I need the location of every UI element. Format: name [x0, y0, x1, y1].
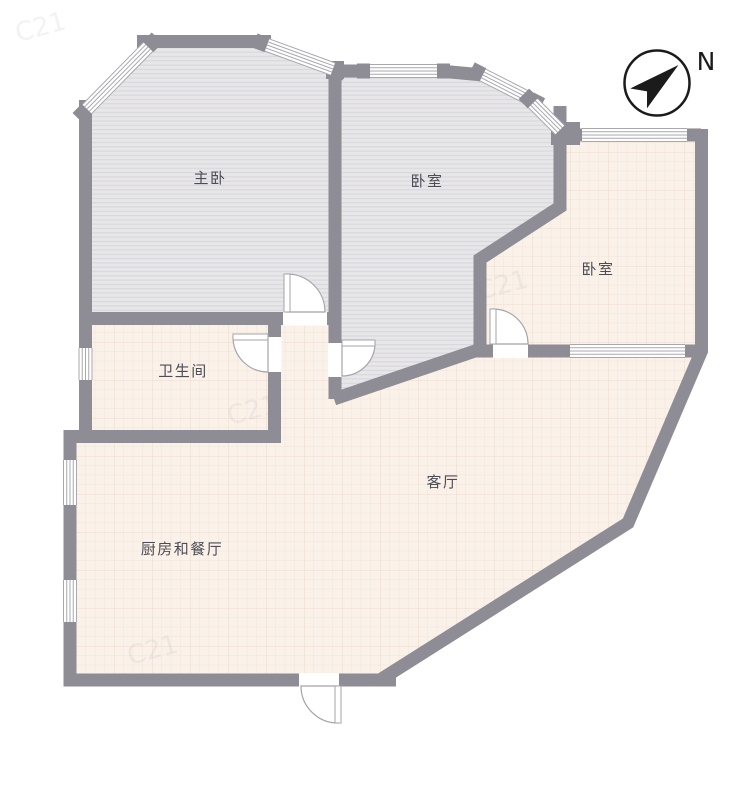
window-kitchen-left-2: [64, 580, 77, 622]
entrance-door-swing: [301, 686, 338, 723]
watermark-text: C21: [12, 7, 69, 49]
bedroom-north-door-leaf: [342, 340, 375, 346]
floor-plan-canvas: 主卧 卧室 卧室 卫生间 客厅 厨房和餐厅 N C21 C21 C21 C21: [0, 0, 750, 785]
window-bathroom-left: [79, 348, 92, 380]
label-bathroom: 卫生间: [158, 362, 208, 380]
bedroom-east-door-gap: [493, 344, 528, 358]
window-bedroom-east-top: [582, 129, 687, 142]
bathroom-door-gap: [268, 337, 282, 372]
compass-north-label: N: [697, 47, 716, 76]
bedroom-north-door-gap: [328, 343, 342, 377]
entrance-door-leaf: [335, 686, 341, 723]
label-master-bedroom: 主卧: [193, 169, 226, 187]
master-door-gap: [283, 312, 327, 326]
compass: N: [625, 47, 716, 116]
window-kitchen-left-1: [64, 460, 77, 505]
bathroom-door-leaf: [233, 334, 268, 340]
window-bedroom-north-top: [357, 64, 450, 79]
bedroom-east-door-leaf: [490, 309, 496, 344]
label-living-room: 客厅: [426, 473, 459, 491]
label-bedroom-east: 卧室: [581, 260, 614, 278]
floor-plan-svg: 主卧 卧室 卧室 卫生间 客厅 厨房和餐厅 N C21 C21 C21 C21: [0, 0, 750, 785]
window-bedroom-east-bottom: [570, 345, 685, 358]
label-bedroom-north: 卧室: [410, 172, 443, 190]
label-kitchen-dining: 厨房和餐厅: [141, 540, 224, 558]
entrance-door-gap: [299, 673, 339, 687]
master-door-leaf: [284, 274, 290, 312]
